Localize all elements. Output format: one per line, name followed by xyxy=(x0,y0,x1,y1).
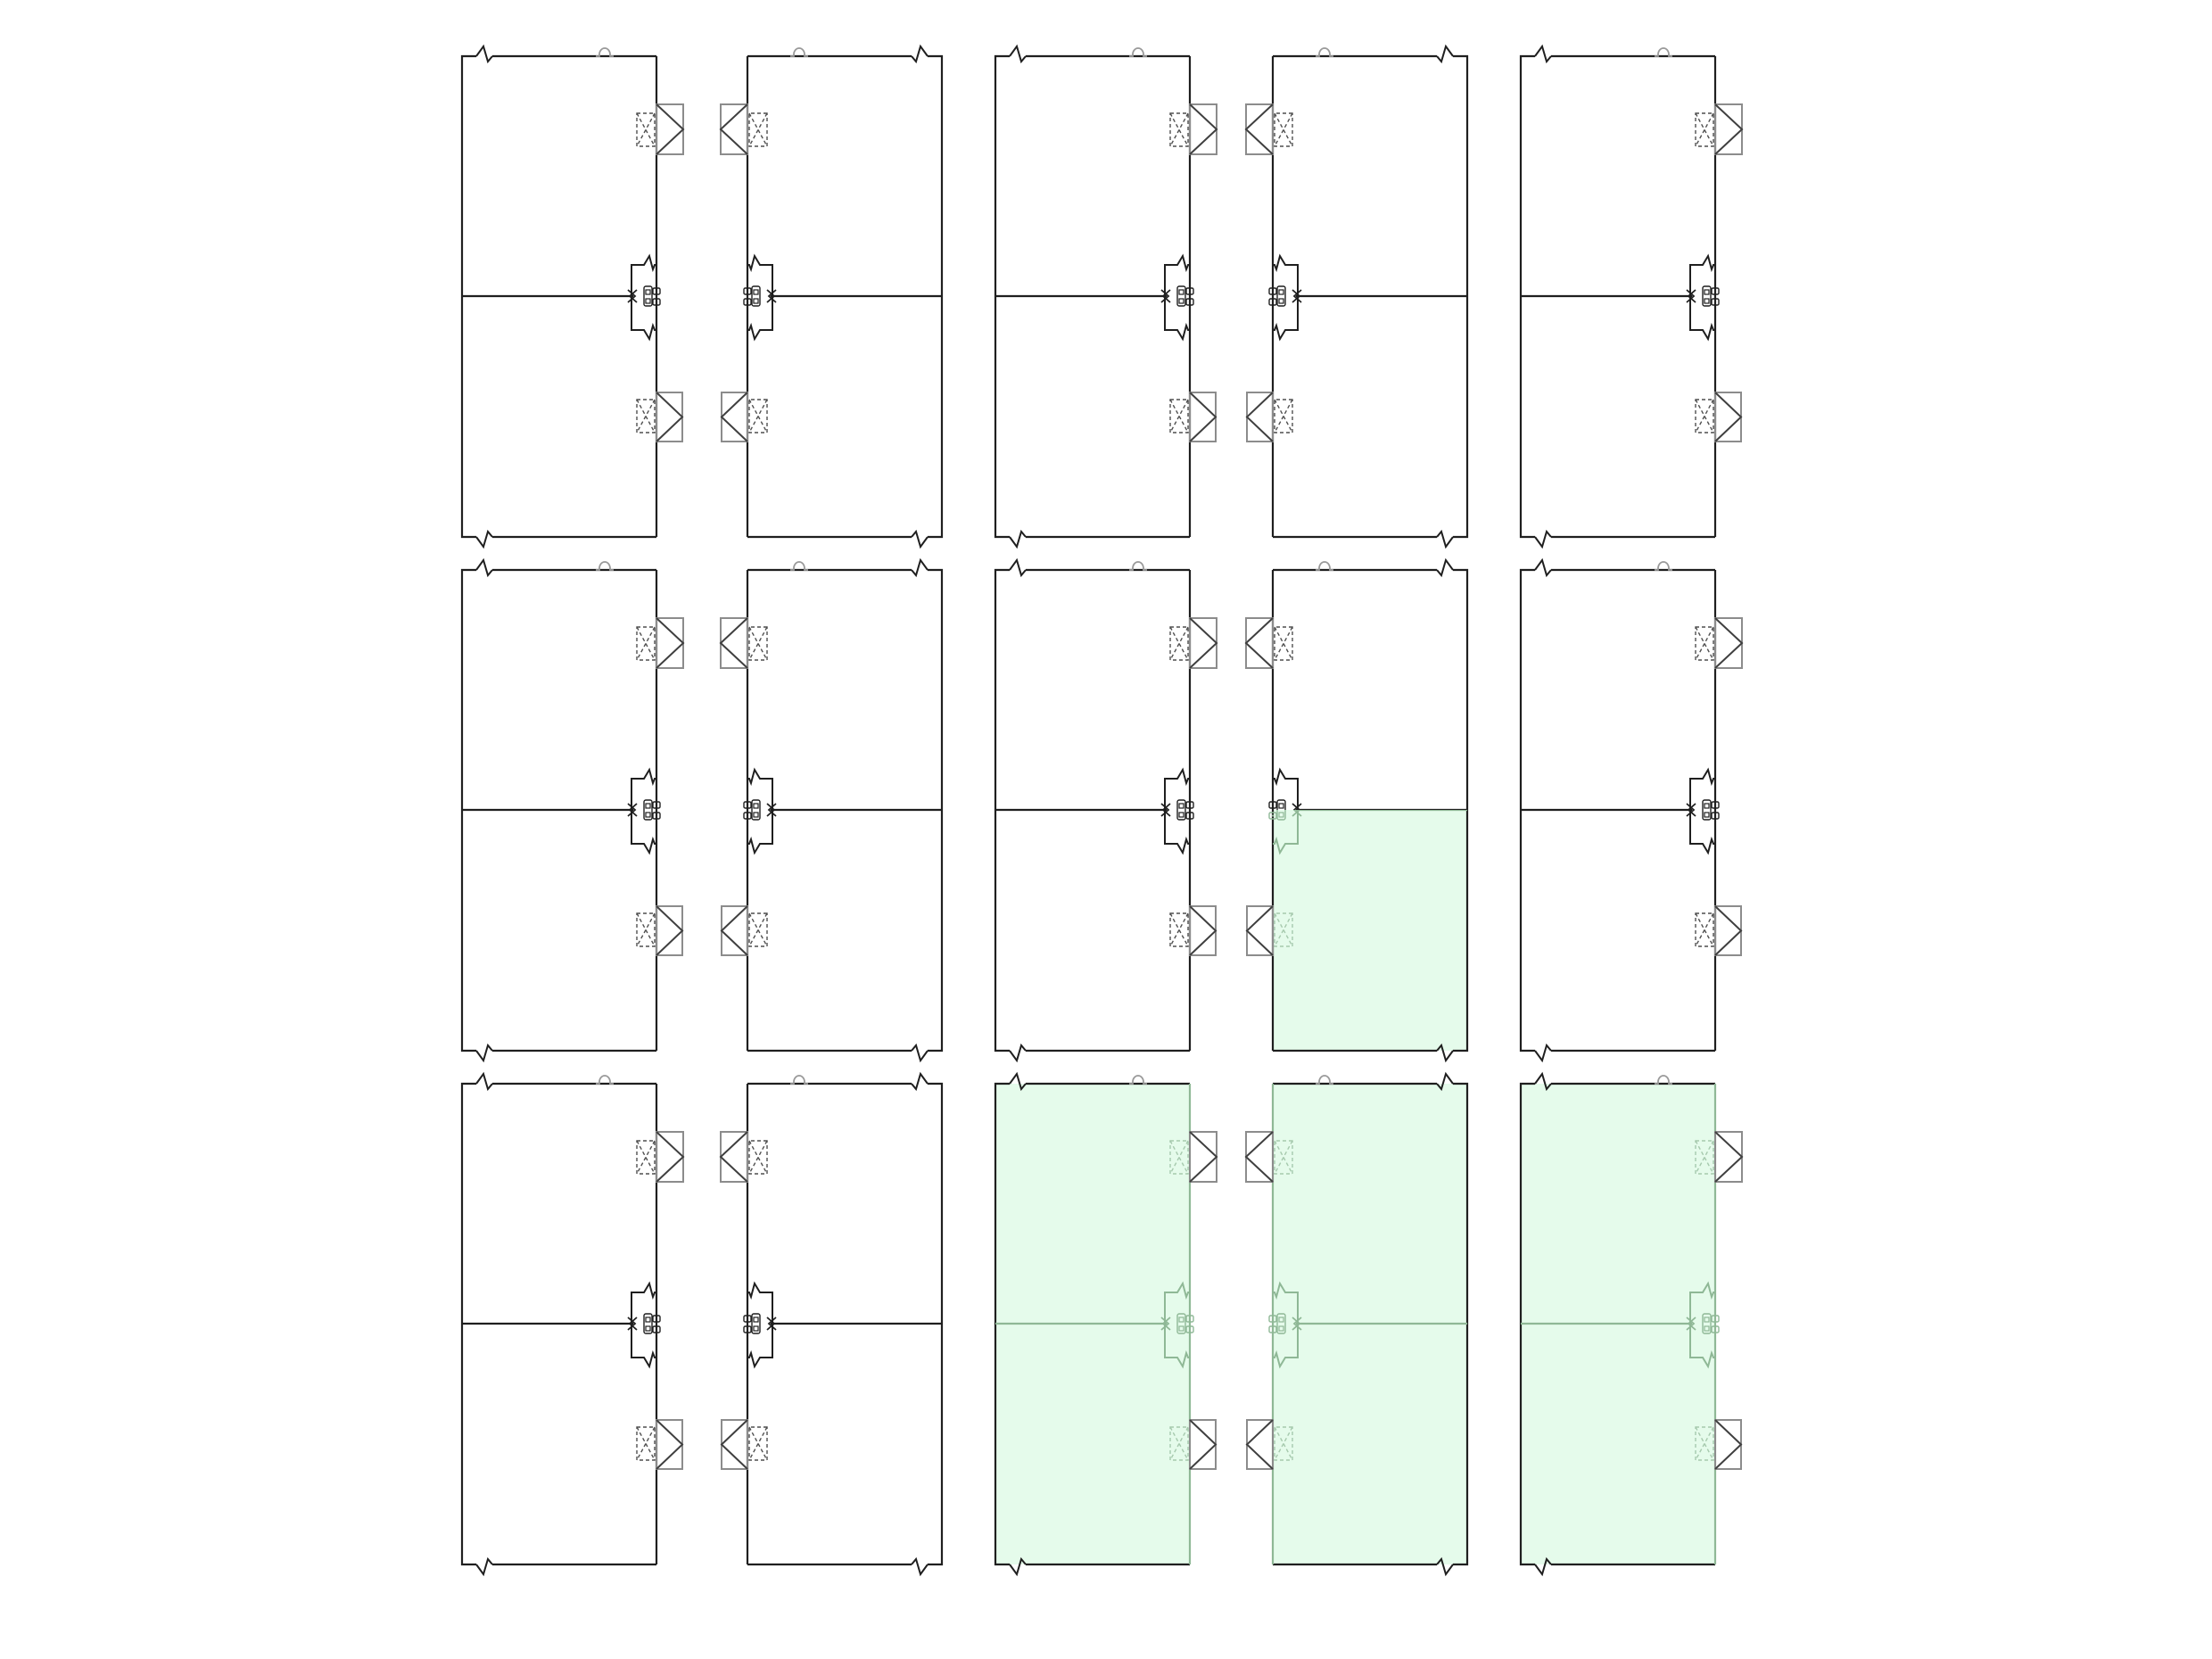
latch-dot xyxy=(1272,301,1274,303)
unit-r3c4[interactable] xyxy=(1246,1074,1467,1574)
latch-dot xyxy=(1272,815,1274,817)
latch-dot xyxy=(1272,291,1274,293)
latch-dot xyxy=(747,1329,748,1331)
unit-r3c3[interactable] xyxy=(995,1074,1217,1574)
latch-dot xyxy=(1189,815,1191,817)
latch-dot xyxy=(747,301,748,303)
latch-dot xyxy=(1714,815,1716,817)
latch-dot xyxy=(747,291,748,293)
latch-dot xyxy=(1272,805,1274,806)
latch-dot xyxy=(1714,301,1716,303)
latch-dot xyxy=(656,301,657,303)
latch-dot xyxy=(656,805,657,806)
latch-dot xyxy=(747,1318,748,1320)
latch-dot xyxy=(1714,1329,1716,1331)
latch-dot xyxy=(656,1318,657,1320)
availability-highlight xyxy=(1273,810,1467,1051)
latch-dot xyxy=(747,805,748,806)
latch-dot xyxy=(1189,805,1191,806)
latch-dot xyxy=(747,815,748,817)
latch-dot xyxy=(1189,301,1191,303)
latch-dot xyxy=(1714,1318,1716,1320)
latch-dot xyxy=(656,815,657,817)
unit-r3c5[interactable] xyxy=(1521,1074,1742,1574)
latch-dot xyxy=(1714,805,1716,806)
latch-dot xyxy=(1189,291,1191,293)
latch-dot xyxy=(1272,1329,1274,1331)
floorplan-svg xyxy=(0,0,2212,1659)
latch-dot xyxy=(656,1329,657,1331)
floorplan-canvas xyxy=(0,0,2212,1659)
latch-dot xyxy=(1714,291,1716,293)
latch-dot xyxy=(1189,1329,1191,1331)
latch-dot xyxy=(1272,1318,1274,1320)
latch-dot xyxy=(656,291,657,293)
latch-dot xyxy=(1189,1318,1191,1320)
